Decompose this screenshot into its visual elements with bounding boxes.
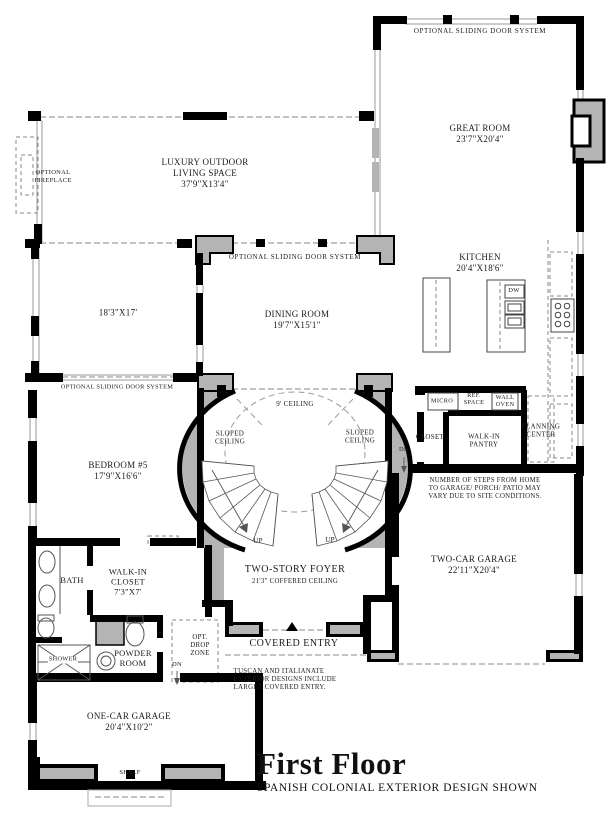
toilet-icon xyxy=(38,615,54,638)
label-shower: SHOWER xyxy=(48,657,78,664)
label-steps-note: NUMBER OF STEPS FROM HOME TO GARAGE/ POR… xyxy=(428,477,541,501)
title-block: First Floor SPANISH COLONIAL EXTERIOR DE… xyxy=(257,748,538,794)
label-ref-space: REF. SPACE xyxy=(464,393,485,407)
label-sliding-door-dining: OPTIONAL SLIDING DOOR SYSTEM xyxy=(229,253,361,261)
label-shelf: SHELF xyxy=(119,769,140,777)
label-opt-drop-zone: OPT. DROP ZONE xyxy=(190,634,209,658)
label-outdoor-living: LUXURY OUTDOOR LIVING SPACE 37'9"X13'4" xyxy=(161,157,248,189)
label-kitchen: KITCHEN 20'4"X18'6" xyxy=(456,252,503,274)
label-walk-in-pantry: WALK-IN PANTRY xyxy=(468,433,500,450)
page-subtitle: SPANISH COLONIAL EXTERIOR DESIGN SHOWN xyxy=(257,782,538,794)
label-two-car-garage: TWO-CAR GARAGE 22'11"X20'4" xyxy=(431,554,517,576)
label-dw: DW xyxy=(508,287,519,295)
entry-marker-icon xyxy=(286,622,298,631)
label-micro: MICRO xyxy=(431,399,453,406)
dashed-openings xyxy=(40,117,545,797)
label-wall-oven: WALL OVEN xyxy=(496,395,515,409)
floor-plan: OPTIONAL SLIDING DOOR SYSTEM GREAT ROOM … xyxy=(0,0,613,815)
label-sloped-ceiling-left: SLOPED CEILING xyxy=(215,430,245,447)
fireplace-icon xyxy=(572,100,604,162)
label-one-car-garage: ONE-CAR GARAGE 20'4"X10'2" xyxy=(87,711,171,733)
label-powder-room: POWDER ROOM xyxy=(114,648,152,668)
powder-sink-icon xyxy=(97,652,115,670)
label-dn-powder: DN xyxy=(172,661,182,669)
label-up-right: UP xyxy=(325,536,335,544)
label-two-story-foyer: TWO-STORY FOYER xyxy=(245,564,346,576)
label-closet: CLOSET xyxy=(416,433,444,441)
garage-apron xyxy=(88,790,171,806)
label-great-room: GREAT ROOM 23'7"X20'4" xyxy=(449,123,510,145)
label-walk-in-closet: WALK-IN CLOSET 7'3"X7' xyxy=(109,567,147,598)
label-sliding-door-top: OPTIONAL SLIDING DOOR SYSTEM xyxy=(414,27,546,35)
label-sliding-door-left: OPTIONAL SLIDING DOOR SYSTEM xyxy=(60,385,174,392)
label-dining-room: DINING ROOM 19'7"X15'1" xyxy=(265,309,330,331)
label-sloped-ceiling-right: SLOPED CEILING xyxy=(345,429,375,446)
label-covered-entry: COVERED ENTRY xyxy=(250,638,339,650)
label-up-left: UP xyxy=(253,537,263,545)
label-9-ceiling: 9' CEILING xyxy=(276,400,314,408)
sink-icon xyxy=(39,551,55,573)
page-title: First Floor xyxy=(257,748,538,779)
label-bath: BATH xyxy=(60,575,83,585)
label-bedroom5: BEDROOM #5 17'9"X16'6" xyxy=(88,460,147,482)
label-optional-fireplace: OPTIONAL FIREPLACE xyxy=(34,169,71,185)
sink-icon xyxy=(39,585,55,607)
dn-arrow-icon xyxy=(174,678,180,685)
label-foyer-ceiling: 21'3" COFFERED CEILING xyxy=(252,578,338,586)
label-room-18x17: 18'3"X17' xyxy=(99,308,138,319)
label-planning-center: PLANNING CENTER xyxy=(522,423,560,440)
label-tuscan-note: TUSCAN AND ITALIANATE EXTERIOR DESIGNS I… xyxy=(234,668,337,692)
label-dn-garage: DN xyxy=(399,446,409,454)
cooktop-icon xyxy=(551,299,574,332)
